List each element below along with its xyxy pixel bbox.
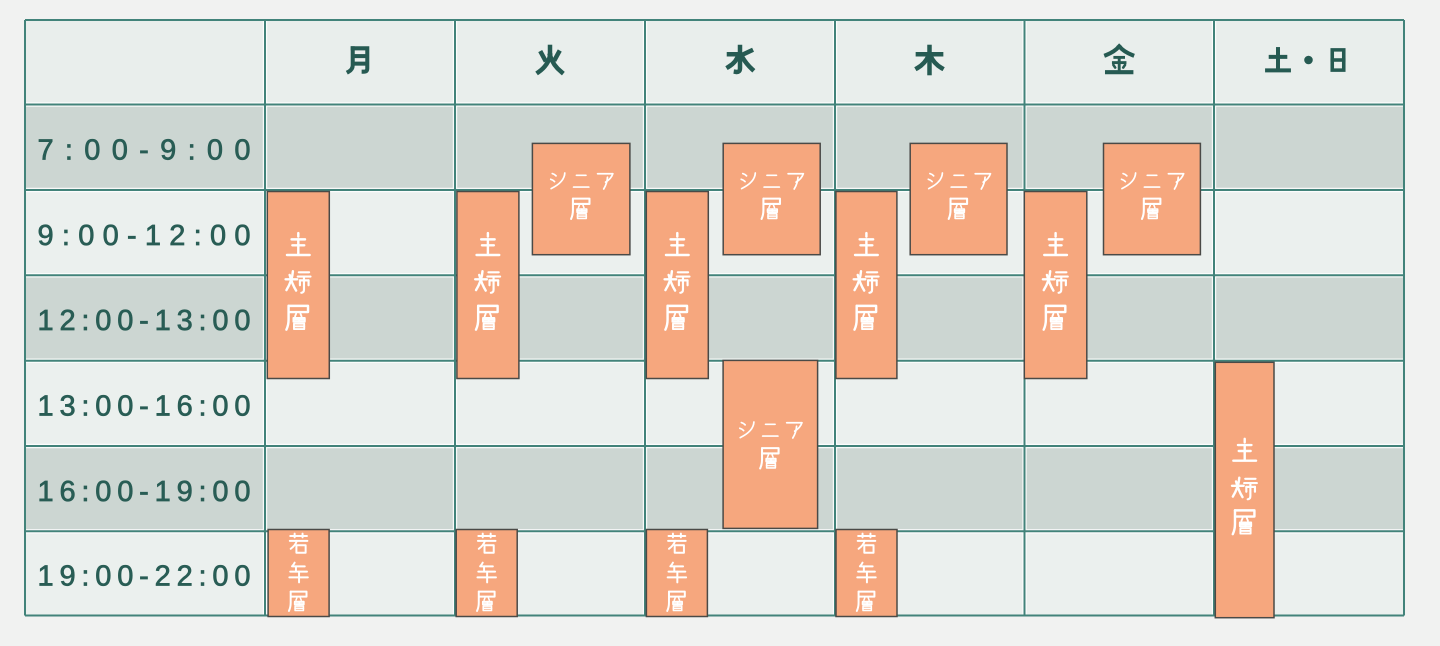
svg-text:16:00-19:00: 16:00-19:00 bbox=[38, 476, 251, 508]
svg-text:12:00-13:00: 12:00-13:00 bbox=[38, 305, 251, 337]
svg-text:9:00-12:00: 9:00-12:00 bbox=[38, 220, 251, 252]
svg-text:13:00-16:00: 13:00-16:00 bbox=[38, 391, 251, 423]
svg-text:19:00-22:00: 19:00-22:00 bbox=[38, 560, 251, 592]
svg-text:7:00-9:00: 7:00-9:00 bbox=[38, 134, 251, 166]
